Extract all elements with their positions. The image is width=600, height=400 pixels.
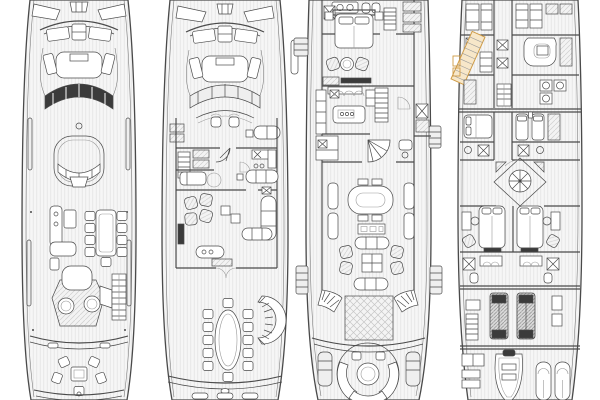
deck-plan-bridge-deck (162, 0, 298, 400)
deck-plan-sun-deck (22, 0, 136, 400)
deck-plan-main-deck (294, 0, 442, 400)
deck-plan-lower-deck (451, 0, 582, 400)
stairs (112, 274, 126, 320)
ga-drawing (0, 0, 600, 400)
yacht-ga-plan (0, 0, 600, 400)
aft-dining-table-12 (203, 299, 253, 382)
